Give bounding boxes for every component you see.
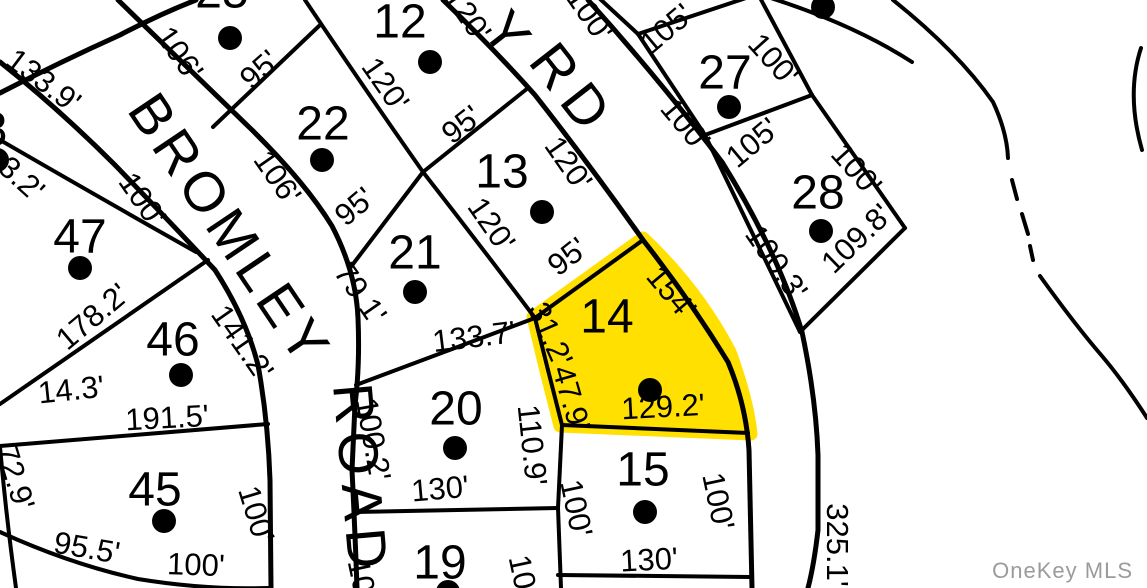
onekey-mls-watermark: OneKey MLS	[992, 558, 1133, 584]
lot-number-46: 46	[146, 313, 199, 366]
lot-center-dot-22	[310, 148, 334, 172]
lot-number-47: 47	[53, 210, 106, 263]
dimension-label: 95'	[233, 43, 286, 96]
lot-number-8: 8	[0, 103, 7, 156]
dimension-label: 178.2'	[49, 276, 135, 356]
dimension-label: 325.1'	[820, 503, 855, 587]
dimension-label: 79.1'	[327, 256, 394, 330]
lot-number-27: 27	[698, 46, 751, 99]
dimension-label: 133.7'	[431, 314, 518, 359]
road-name-road: ROAD	[321, 381, 401, 580]
dimension-label: 133.9'	[0, 41, 87, 119]
lot-center-dot-12	[418, 50, 442, 74]
terrain-dash-1	[1012, 180, 1017, 199]
terrain-curve-top	[893, 0, 1008, 158]
lot-center-dot-13	[530, 200, 554, 224]
lot-center-dot-25	[218, 26, 242, 50]
lot-number-45: 45	[128, 463, 181, 516]
road-name-rd: RD	[518, 31, 630, 149]
lot-number-20: 20	[429, 382, 482, 435]
dimension-label: 100'	[231, 482, 281, 547]
dimension-label: 72.9'	[0, 440, 42, 514]
dimension-label: 130'	[410, 469, 470, 509]
lot-center-dot-21	[403, 280, 427, 304]
lot-number-12: 12	[373, 0, 426, 48]
lot-number-21: 21	[388, 226, 441, 279]
dimension-label: 105'	[719, 111, 786, 175]
dimension-label: 110.9'	[511, 403, 554, 487]
dimension-label: 100'	[654, 91, 718, 158]
dimension-label: 105'	[633, 0, 700, 60]
dimension-label: 3.2'	[0, 149, 51, 208]
dimension-label: 14.3'	[36, 369, 106, 411]
terrain-dash-2	[1022, 214, 1028, 234]
dimension-label: 100'	[695, 469, 741, 533]
lot-number-28: 28	[791, 166, 844, 219]
dimension-label: 106'	[247, 144, 309, 211]
boundary-45-south	[0, 532, 268, 588]
terrain-dash-3	[1030, 246, 1033, 260]
plat-map-canvas: 81213141519202122252728454647133.9'3.2'1…	[0, 0, 1147, 588]
dimension-label: 95.5'	[51, 525, 122, 571]
dimension-label: 100'	[167, 546, 226, 583]
lot-number-22: 22	[296, 97, 349, 150]
dimension-label: 106'	[149, 20, 211, 87]
lot-number-15: 15	[616, 443, 669, 496]
dimension-label: 95'	[435, 98, 488, 150]
plat-map: 81213141519202122252728454647133.9'3.2'1…	[0, 0, 1147, 588]
lot-center-dot-15	[633, 500, 657, 524]
dimension-label: 95'	[328, 180, 381, 233]
lot-number-19: 19	[413, 536, 466, 588]
lot-center-dot-46	[169, 363, 193, 387]
lot-number-14[interactable]: 14	[580, 290, 633, 343]
dimension-label: 130'	[619, 541, 678, 579]
dimension-label: 100.3'	[738, 218, 815, 306]
lot-center-dot	[811, 0, 835, 19]
dimension-label: 129.2'	[620, 387, 705, 426]
lot-center-dot-20	[443, 436, 467, 460]
terrain-curve-right	[1134, 48, 1142, 150]
lot-number-25: 25	[195, 0, 248, 18]
dimension-label: 191.5'	[124, 398, 209, 437]
dimension-label: 10	[502, 552, 543, 588]
dimension-label: 120'	[461, 191, 523, 258]
lot-number-13: 13	[475, 145, 528, 198]
terrain-curve-mid	[1040, 276, 1147, 418]
